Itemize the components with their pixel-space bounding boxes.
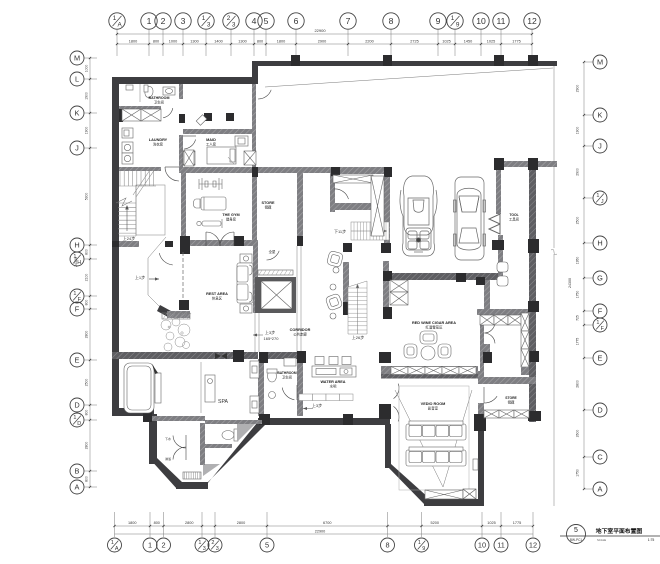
svg-text:B: B [75,467,80,476]
svg-text:3: 3 [207,22,211,29]
svg-text:24300: 24300 [568,278,572,288]
svg-text:影音室: 影音室 [428,406,439,411]
svg-text:A: A [117,22,122,29]
svg-text:D: D [597,406,602,415]
svg-text:800: 800 [85,476,89,482]
svg-text:SCALE: SCALE [597,538,606,542]
svg-text:MAID: MAID [206,138,216,142]
svg-text:2200: 2200 [365,40,373,44]
svg-text:2725: 2725 [410,40,418,44]
svg-text:J: J [598,142,602,151]
svg-text:5200: 5200 [431,521,439,525]
svg-text:11: 11 [497,16,506,26]
svg-text:红酒雪茄区: 红酒雪茄区 [426,325,444,330]
svg-text:1800: 1800 [128,521,136,525]
svg-text:BW-PC1: BW-PC1 [570,538,583,542]
svg-text:2100: 2100 [85,274,89,282]
svg-text:3: 3 [216,546,219,552]
svg-text:A: A [115,546,119,552]
svg-text:K: K [598,111,603,120]
svg-text:1775: 1775 [576,338,580,346]
svg-text:1800: 1800 [129,40,137,44]
svg-text:THE GYM: THE GYM [222,213,239,217]
svg-text:2800: 2800 [185,521,193,525]
svg-text:2: 2 [211,540,214,546]
svg-text:800: 800 [85,249,89,255]
svg-text:D: D [74,401,79,410]
svg-text:3: 3 [232,22,236,29]
svg-text:5300: 5300 [85,193,89,201]
svg-text:健身房: 健身房 [226,217,237,222]
svg-text:1750: 1750 [576,469,580,477]
svg-text:7: 7 [346,16,351,26]
svg-text:2: 2 [161,16,166,26]
svg-text:RED WINE CIGAR AREA: RED WINE CIGAR AREA [412,321,456,325]
svg-text:9: 9 [436,16,441,26]
svg-text:1900: 1900 [85,92,89,100]
svg-text:5: 5 [264,16,269,26]
svg-text:22900: 22900 [315,530,326,534]
svg-text:1: 1 [451,15,455,22]
svg-text:1300: 1300 [238,40,246,44]
svg-text:2800: 2800 [85,331,89,339]
svg-text:J: J [601,199,604,205]
svg-text:VEDIO ROOM: VEDIO ROOM [421,402,446,406]
svg-text:3: 3 [203,546,206,552]
svg-text:E: E [75,356,80,365]
svg-text:STORE: STORE [261,201,274,205]
svg-text:K: K [75,109,80,118]
svg-text:12: 12 [529,541,537,550]
svg-text:储藏: 储藏 [508,400,515,405]
svg-text:上1步: 上1步 [135,274,145,280]
svg-text:2800: 2800 [576,380,580,388]
svg-text:1: 1 [111,540,114,546]
svg-text:L: L [75,75,79,84]
svg-text:2900: 2900 [318,40,326,44]
svg-text:卫生间: 卫生间 [282,375,293,380]
svg-text:1300: 1300 [190,40,198,44]
svg-text:1800: 1800 [277,40,285,44]
svg-text:A: A [598,485,603,494]
svg-text:下11步: 下11步 [334,228,346,234]
svg-text:REST AREA: REST AREA [206,292,228,296]
svg-text:1400: 1400 [214,40,222,44]
svg-text:800: 800 [85,410,89,416]
svg-text:储藏: 储藏 [265,205,272,210]
svg-text:1750: 1750 [576,291,580,299]
svg-text:1000: 1000 [169,40,177,44]
svg-text:上24步: 上24步 [123,235,135,241]
svg-text:G: G [597,274,603,283]
svg-text:地下室平面布置图: 地下室平面布置图 [596,527,643,535]
svg-text:M: M [597,58,603,67]
svg-text:1900: 1900 [85,127,89,135]
svg-text:10: 10 [478,541,486,550]
svg-text:2600: 2600 [576,430,580,438]
svg-text:1: 1 [148,541,152,550]
svg-text:165*270: 165*270 [264,336,280,341]
svg-text:1: 1 [73,291,76,297]
svg-text:F: F [598,307,603,316]
svg-text:1: 1 [596,320,599,326]
svg-text:公共走廊: 公共走廊 [293,332,307,337]
svg-text:2800: 2800 [85,442,89,450]
svg-text:800: 800 [85,300,89,306]
svg-text:洗衣房: 洗衣房 [153,142,164,147]
svg-text:CORRIDOR: CORRIDOR [290,328,311,332]
svg-text:1025: 1025 [487,521,495,525]
svg-text:8: 8 [389,16,394,26]
svg-text:A: A [75,483,80,492]
svg-text:LAUNDRY: LAUNDRY [149,138,168,142]
svg-text:22900: 22900 [314,28,326,33]
svg-text:淋浴: 淋浴 [165,456,171,461]
svg-text:H: H [74,241,79,250]
svg-text:工人房: 工人房 [206,142,217,147]
svg-text:1: 1 [73,254,76,260]
svg-text:1775: 1775 [513,521,521,525]
svg-text:8: 8 [385,541,389,550]
svg-text:F: F [75,305,80,314]
svg-text:1: 1 [202,15,206,22]
svg-text:休息区: 休息区 [212,296,223,301]
svg-text:BATHROOM: BATHROOM [149,96,170,100]
svg-text:800: 800 [153,40,159,44]
svg-text:TOOL: TOOL [509,213,518,217]
svg-text:H: H [77,260,81,266]
svg-text:800: 800 [257,40,263,44]
svg-text:800: 800 [154,521,160,525]
svg-text:1000: 1000 [85,65,89,73]
svg-text:4: 4 [252,16,257,26]
svg-text:H: H [597,239,602,248]
svg-text:2500: 2500 [85,379,89,387]
svg-text:9: 9 [422,546,425,552]
svg-text:1: 1 [147,16,152,26]
svg-text:上3步: 上3步 [265,329,275,335]
svg-text:下水: 下水 [165,436,171,441]
svg-text:2800: 2800 [237,521,245,525]
svg-text:WATER AREA: WATER AREA [320,380,345,384]
svg-text:2: 2 [161,541,165,550]
svg-text:1: 1 [113,15,117,22]
svg-text:E: E [598,354,603,363]
svg-text:725: 725 [576,315,580,321]
svg-text:5: 5 [265,541,269,550]
svg-text:全屋: 全屋 [269,249,276,254]
svg-text:J: J [75,144,79,153]
svg-text:1: 1 [198,540,201,546]
svg-text:工具间: 工具间 [509,217,520,222]
svg-text:6: 6 [294,16,299,26]
svg-text:1: 1 [73,415,76,421]
svg-text:1450: 1450 [464,40,472,44]
svg-text:2900: 2900 [576,85,580,93]
svg-text:1025: 1025 [442,40,450,44]
svg-text:2900: 2900 [576,168,580,176]
svg-text:6700: 6700 [323,521,331,525]
svg-text:BATHROOM: BATHROOM [277,371,296,375]
svg-text:2: 2 [227,15,231,22]
svg-text:1:75: 1:75 [648,538,655,542]
svg-text:9: 9 [456,22,460,29]
svg-text:5: 5 [574,527,578,534]
svg-text:10: 10 [476,16,486,26]
svg-text:卫生间: 卫生间 [154,100,165,105]
svg-text:11: 11 [497,541,505,550]
svg-text:C: C [597,453,603,462]
svg-text:2500: 2500 [576,217,580,225]
svg-text:1025: 1025 [487,40,495,44]
svg-text:上3步: 上3步 [312,402,322,408]
svg-text:12: 12 [527,16,537,26]
svg-text:上26步: 上26步 [352,334,364,340]
svg-text:M: M [74,54,80,63]
svg-text:1: 1 [418,540,421,546]
svg-text:1900: 1900 [576,127,580,135]
svg-text:1: 1 [596,193,599,199]
svg-text:1950: 1950 [576,257,580,265]
svg-text:STORE: STORE [505,396,517,400]
svg-text:3: 3 [181,16,186,26]
svg-text:D: D [77,421,81,427]
svg-text:SPA: SPA [218,399,229,405]
svg-text:1775: 1775 [512,40,520,44]
svg-text:水吧: 水吧 [330,384,337,389]
